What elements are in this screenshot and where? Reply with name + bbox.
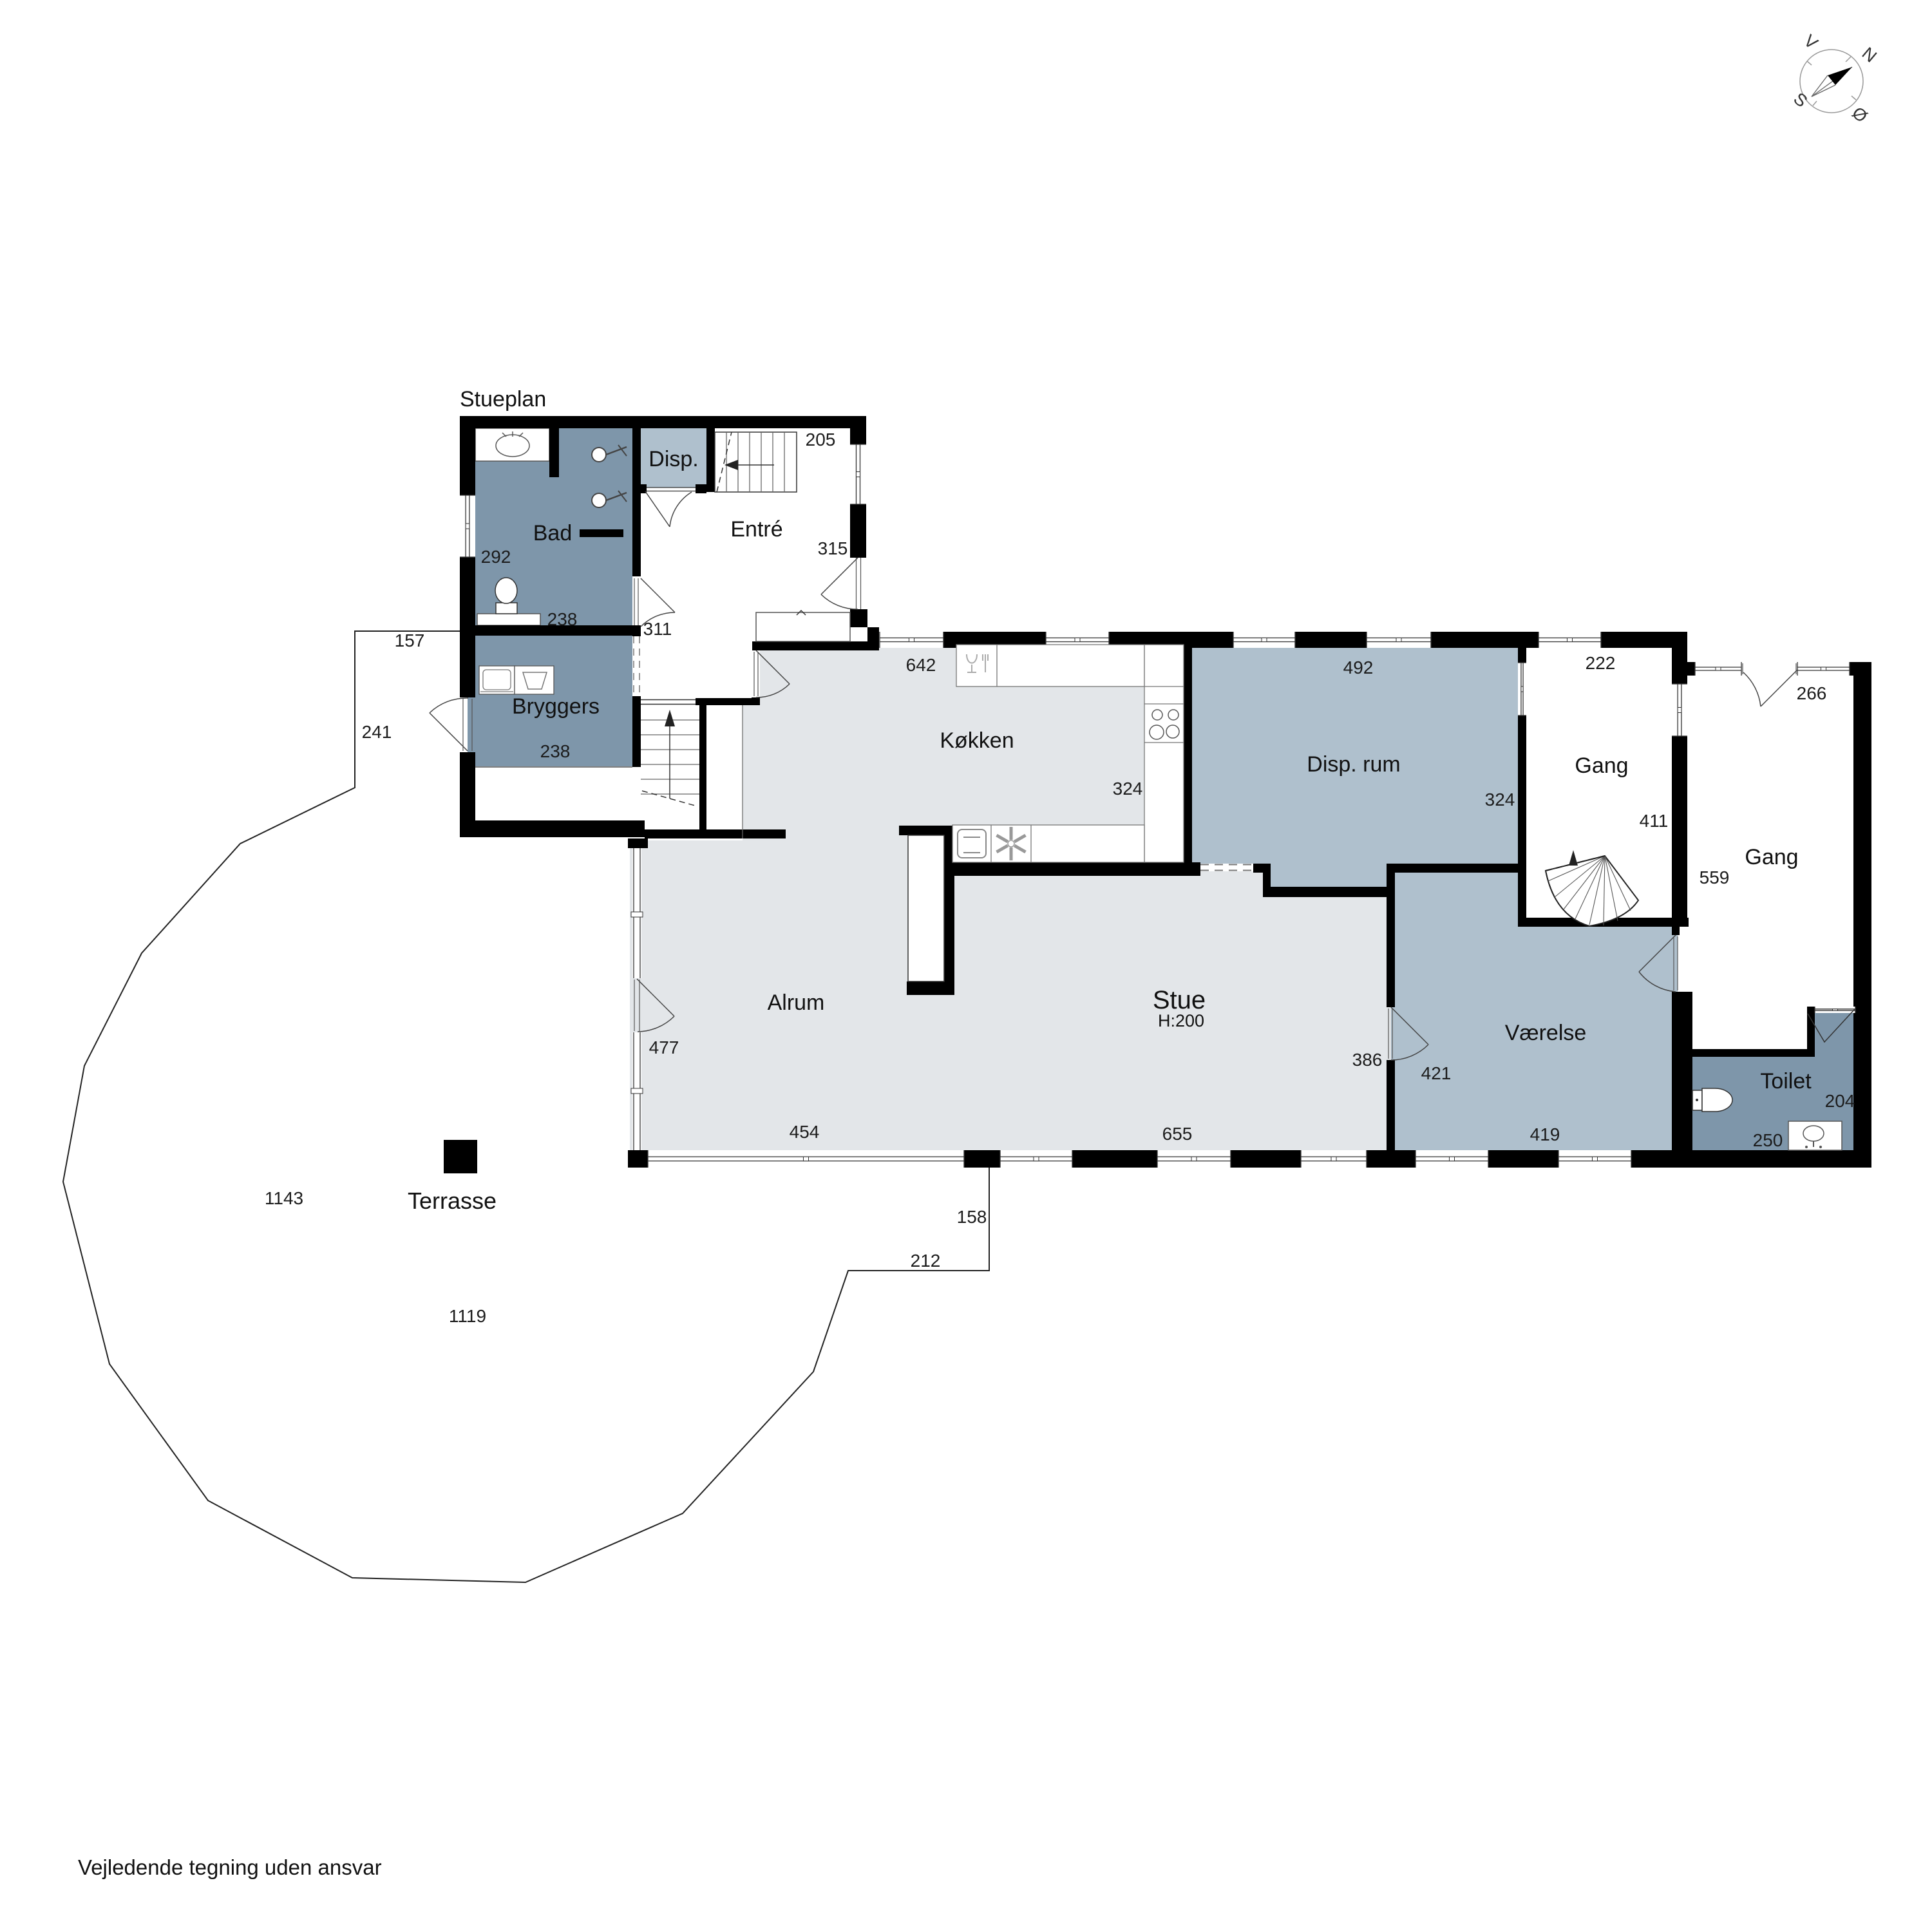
svg-text:Vejledende tegning uden ansvar: Vejledende tegning uden ansvar xyxy=(78,1855,382,1879)
svg-text:H:200: H:200 xyxy=(1158,1011,1204,1030)
svg-text:238: 238 xyxy=(540,741,571,761)
svg-text:454: 454 xyxy=(790,1122,820,1142)
svg-text:324: 324 xyxy=(1485,790,1515,810)
svg-text:477: 477 xyxy=(649,1037,679,1057)
svg-text:642: 642 xyxy=(906,655,936,675)
svg-text:204: 204 xyxy=(1825,1091,1855,1111)
svg-text:386: 386 xyxy=(1352,1050,1383,1070)
svg-text:Terrasse: Terrasse xyxy=(408,1188,497,1214)
svg-text:205: 205 xyxy=(806,430,836,450)
svg-text:238: 238 xyxy=(547,609,578,629)
svg-text:157: 157 xyxy=(395,630,425,650)
svg-text:655: 655 xyxy=(1162,1124,1193,1144)
svg-text:492: 492 xyxy=(1343,658,1374,677)
svg-text:Stueplan: Stueplan xyxy=(460,387,546,412)
svg-text:Disp. rum: Disp. rum xyxy=(1307,752,1400,777)
svg-text:Alrum: Alrum xyxy=(768,990,825,1015)
svg-text:411: 411 xyxy=(1640,811,1669,831)
svg-text:Køkken: Køkken xyxy=(940,728,1014,753)
svg-text:Gang: Gang xyxy=(1575,753,1628,778)
svg-text:222: 222 xyxy=(1586,653,1616,673)
svg-text:Gang: Gang xyxy=(1745,845,1798,869)
svg-text:324: 324 xyxy=(1113,779,1143,799)
svg-text:Toilet: Toilet xyxy=(1760,1069,1812,1094)
svg-text:559: 559 xyxy=(1700,867,1730,887)
svg-text:315: 315 xyxy=(818,538,848,558)
svg-text:Bad: Bad xyxy=(533,521,573,545)
svg-text:1143: 1143 xyxy=(265,1188,303,1208)
svg-text:292: 292 xyxy=(481,547,511,567)
svg-text:250: 250 xyxy=(1753,1130,1783,1150)
svg-text:241: 241 xyxy=(362,722,392,742)
svg-text:Bryggers: Bryggers xyxy=(512,694,600,719)
svg-text:Entré: Entré xyxy=(730,517,782,542)
svg-text:266: 266 xyxy=(1797,683,1827,703)
svg-text:Disp.: Disp. xyxy=(649,447,698,471)
svg-text:Stue: Stue xyxy=(1153,986,1206,1014)
svg-text:421: 421 xyxy=(1421,1063,1452,1083)
svg-text:311: 311 xyxy=(643,619,672,639)
svg-text:Værelse: Værelse xyxy=(1505,1021,1587,1045)
svg-text:212: 212 xyxy=(911,1251,941,1271)
svg-text:1119: 1119 xyxy=(449,1306,486,1326)
svg-text:158: 158 xyxy=(957,1207,987,1227)
svg-text:419: 419 xyxy=(1530,1124,1560,1144)
